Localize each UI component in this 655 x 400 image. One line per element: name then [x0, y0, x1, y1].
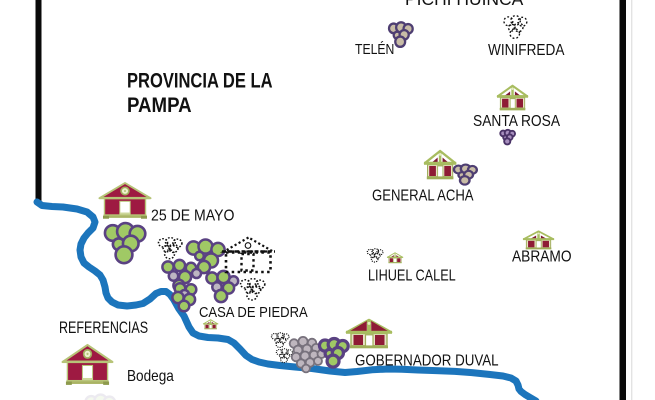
svg-text:PAMPA: PAMPA	[127, 94, 192, 117]
svg-text:CASA DE PIEDRA: CASA DE PIEDRA	[199, 303, 308, 320]
svg-text:TELÉN: TELÉN	[355, 41, 394, 57]
svg-text:GENERAL ACHA: GENERAL ACHA	[372, 187, 474, 204]
svg-text:ABRAMO: ABRAMO	[512, 248, 572, 266]
svg-text:LIHUEL CALEL: LIHUEL CALEL	[368, 267, 456, 284]
svg-text:Bodega: Bodega	[127, 368, 175, 385]
svg-text:PROVINCIA DE LA: PROVINCIA DE LA	[127, 70, 273, 94]
svg-text:GOBERNADOR DUVAL: GOBERNADOR DUVAL	[355, 352, 499, 369]
svg-text:SANTA ROSA: SANTA ROSA	[473, 113, 560, 130]
svg-text:REFERENCIAS: REFERENCIAS	[59, 319, 148, 337]
svg-text:PICHI HUINCA: PICHI HUINCA	[405, 0, 523, 9]
svg-text:25 DE MAYO: 25 DE MAYO	[151, 207, 234, 225]
svg-text:WINIFREDA: WINIFREDA	[488, 42, 565, 59]
